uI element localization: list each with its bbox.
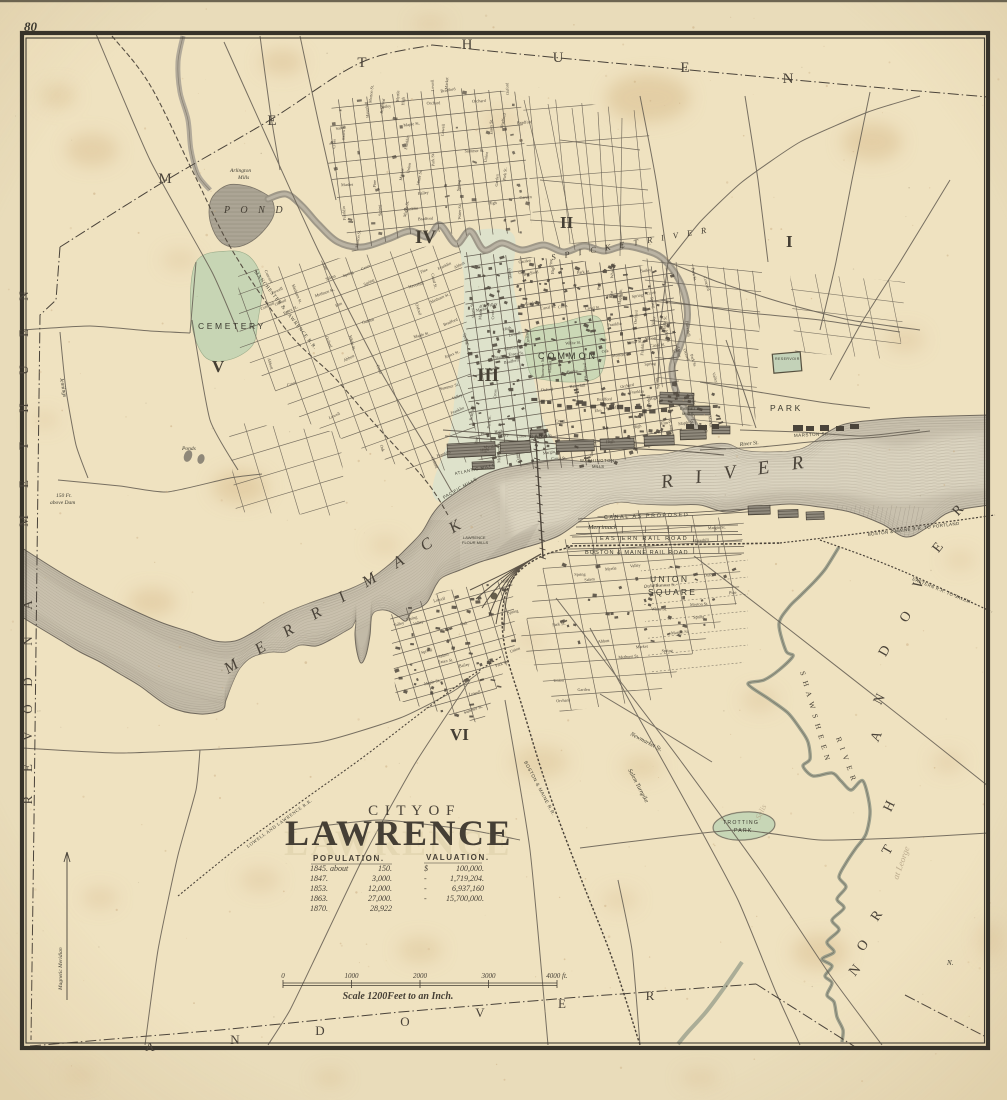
svg-text:V: V (475, 1005, 485, 1020)
svg-text:D: D (315, 1023, 324, 1038)
svg-text:E: E (680, 60, 689, 76)
svg-text:E: E (267, 113, 276, 129)
svg-text:SQUARE: SQUARE (648, 587, 697, 597)
svg-text:MILLS: MILLS (592, 464, 604, 469)
svg-text:E: E (20, 764, 35, 772)
svg-text:1000: 1000 (345, 972, 360, 980)
svg-text:1870.: 1870. (310, 904, 328, 913)
svg-text:V: V (20, 731, 35, 741)
svg-text:E: E (558, 996, 566, 1011)
svg-text:M: M (158, 171, 171, 187)
svg-text:VI: VI (450, 725, 469, 744)
svg-text:Scale 1200Feet to an Inch.: Scale 1200Feet to an Inch. (343, 991, 454, 1002)
svg-text:H: H (462, 37, 473, 53)
svg-text:R: R (20, 795, 35, 804)
svg-text:R: R (646, 988, 655, 1003)
svg-text:N: N (16, 291, 31, 301)
svg-text:2000: 2000 (413, 972, 428, 980)
svg-text:N: N (230, 1032, 240, 1047)
svg-text:II: II (560, 213, 574, 232)
svg-text:TROTTING: TROTTING (723, 820, 759, 826)
svg-text:IV: IV (415, 227, 436, 248)
svg-text:-: - (424, 874, 427, 883)
svg-text:1853.: 1853. (310, 884, 328, 893)
svg-text:PARK: PARK (734, 828, 753, 834)
svg-text:D: D (20, 677, 35, 686)
svg-text:III: III (477, 365, 499, 386)
svg-text:1845. about: 1845. about (310, 864, 349, 873)
svg-text:O: O (400, 1014, 409, 1029)
svg-text:T: T (16, 442, 31, 450)
svg-text:CEMETERY: CEMETERY (198, 321, 266, 331)
svg-text:A: A (145, 1039, 155, 1054)
svg-text:U: U (553, 50, 564, 66)
svg-text:I: I (786, 232, 793, 251)
svg-text:PARK: PARK (770, 403, 803, 413)
svg-text:VALUATION.: VALUATION. (426, 853, 490, 862)
svg-text:COMMON: COMMON (538, 351, 598, 361)
svg-text:N.: N. (946, 959, 954, 967)
svg-text:T: T (357, 55, 366, 71)
svg-text:4000 ft.: 4000 ft. (546, 972, 568, 980)
svg-text:BOSTON & MAINE RAIL ROAD: BOSTON & MAINE RAIL ROAD (585, 550, 689, 556)
svg-text:H: H (16, 403, 31, 412)
svg-text:6,937,160: 6,937,160 (452, 884, 484, 893)
svg-text:100,000.: 100,000. (456, 864, 484, 873)
svg-text:N: N (20, 636, 35, 646)
svg-text:3000: 3000 (481, 972, 497, 980)
svg-text:U: U (16, 365, 31, 375)
svg-text:V: V (212, 357, 225, 376)
svg-text:Magnetic Meridian: Magnetic Meridian (58, 947, 64, 991)
svg-text:UNION: UNION (650, 574, 689, 584)
svg-text:M: M (16, 515, 31, 527)
svg-text:0: 0 (281, 972, 285, 980)
svg-text:RESERVOIR: RESERVOIR (775, 357, 800, 361)
svg-text:Arlington: Arlington (229, 168, 251, 174)
svg-text:Ponds: Ponds (181, 446, 196, 452)
svg-text:15,700,000.: 15,700,000. (446, 894, 484, 903)
svg-text:150 Ft.: 150 Ft. (56, 493, 72, 499)
svg-text:LAWRENCE: LAWRENCE (285, 813, 513, 853)
svg-text:FLOUR MILLS: FLOUR MILLS (462, 540, 489, 545)
svg-text:WASHINGTON: WASHINGTON (580, 458, 615, 463)
svg-text:POPULATION.: POPULATION. (313, 854, 385, 863)
svg-text:27,000.: 27,000. (368, 894, 392, 903)
svg-text:$: $ (424, 864, 428, 873)
svg-text:MILLS: MILLS (682, 411, 694, 416)
svg-text:EASTERN RAIL ROAD: EASTERN RAIL ROAD (600, 536, 689, 542)
svg-text:P O N D: P O N D (223, 205, 287, 216)
svg-text:1847.: 1847. (310, 874, 328, 883)
svg-text:80: 80 (24, 19, 38, 34)
svg-text:E: E (16, 480, 31, 488)
svg-text:-: - (424, 884, 427, 893)
svg-text:A: A (20, 600, 35, 610)
svg-text:28,922: 28,922 (370, 904, 392, 913)
svg-text:Merrimack: Merrimack (587, 524, 617, 531)
svg-text:150.: 150. (378, 864, 392, 873)
svg-text:O: O (20, 704, 35, 713)
svg-text:E: E (16, 329, 31, 337)
svg-text:3,000.: 3,000. (371, 874, 392, 883)
svg-text:above Dam: above Dam (50, 500, 75, 506)
svg-text:12,000.: 12,000. (368, 884, 392, 893)
svg-text:Mills: Mills (237, 175, 249, 181)
svg-text:-: - (424, 894, 427, 903)
svg-text:N: N (783, 71, 794, 87)
svg-text:1863.: 1863. (310, 894, 328, 903)
svg-text:1,719,204.: 1,719,204. (450, 874, 484, 883)
